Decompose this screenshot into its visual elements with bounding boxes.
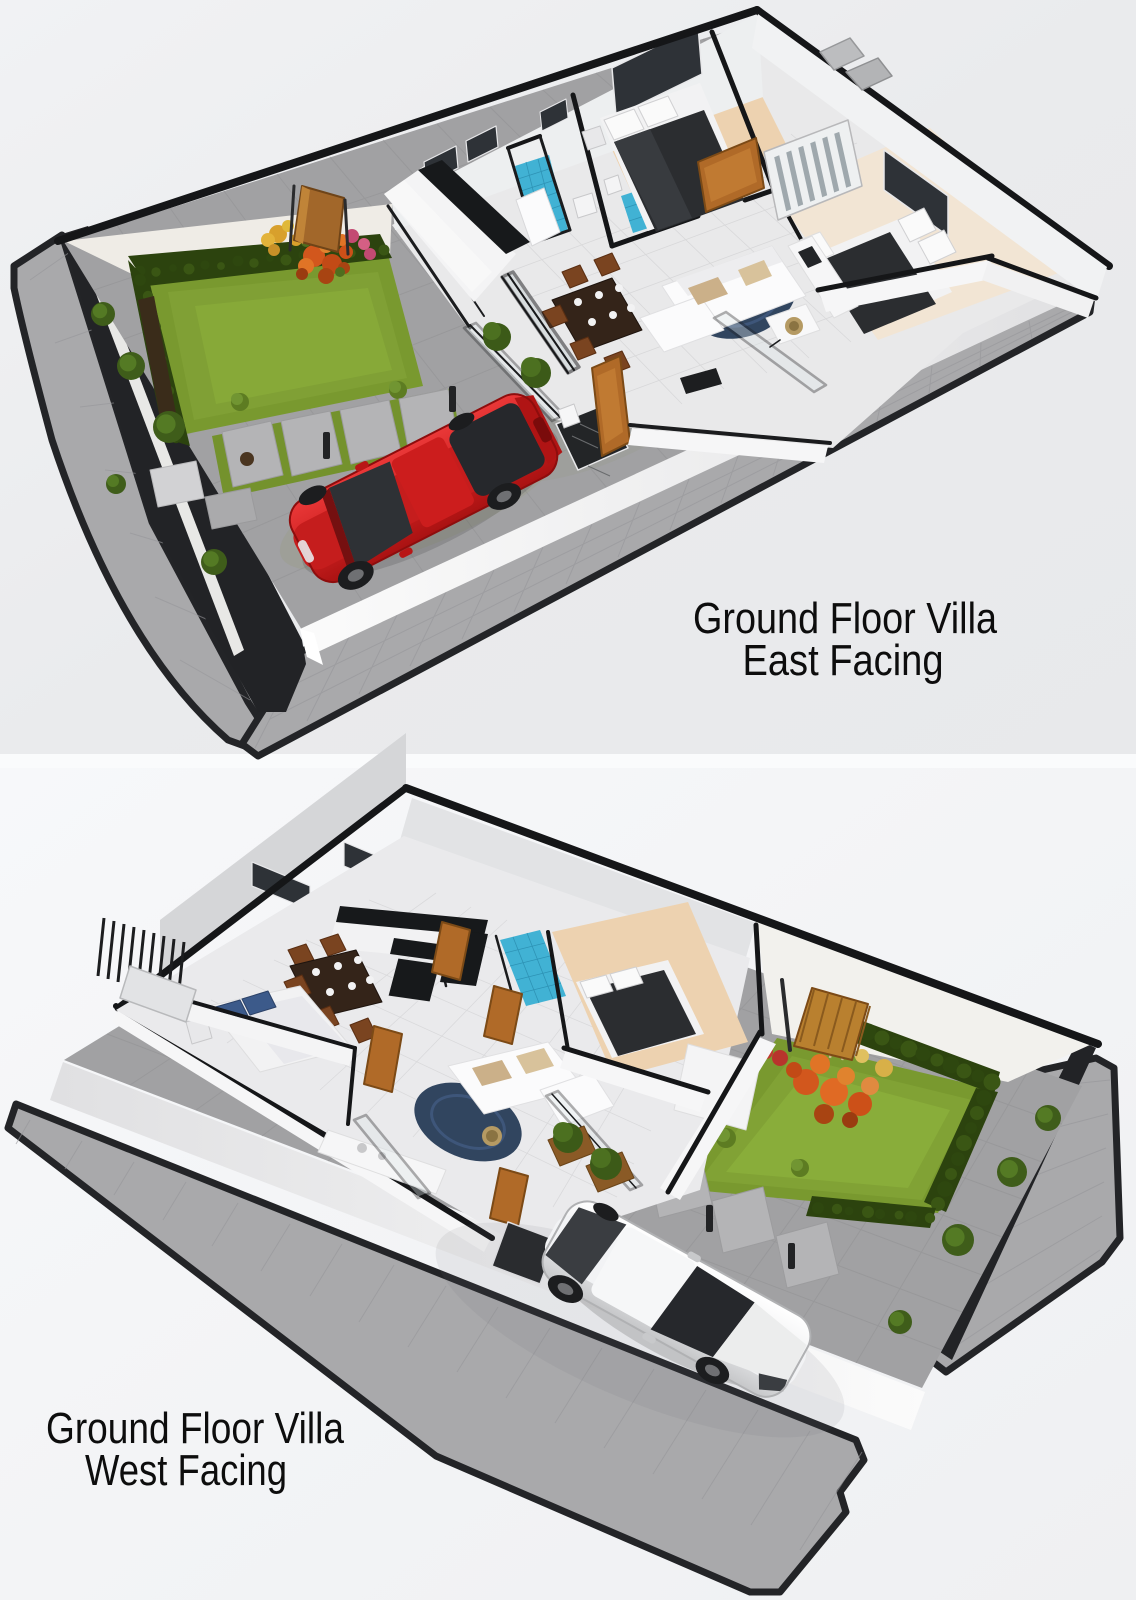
svg-text:West Facing: West Facing: [85, 1446, 287, 1495]
svg-text:East Facing: East Facing: [743, 636, 944, 685]
